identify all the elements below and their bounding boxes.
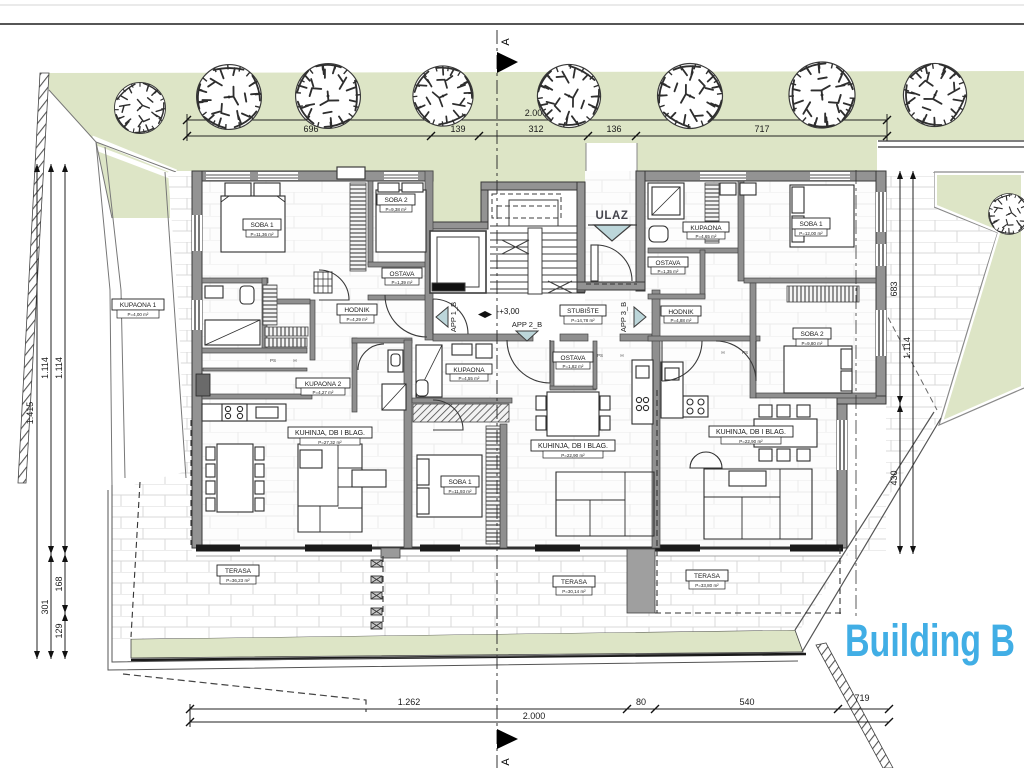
svg-text:OSTAVA: OSTAVA — [390, 271, 416, 278]
svg-text:P=1,35 m²: P=1,35 m² — [658, 269, 679, 274]
svg-text:168: 168 — [54, 576, 64, 591]
svg-text:SOBA 1: SOBA 1 — [799, 221, 823, 228]
svg-text:P=4,65 m²: P=4,65 m² — [696, 234, 717, 239]
svg-text:SOBA 2: SOBA 2 — [800, 331, 824, 338]
svg-text:P=9,38 m²: P=9,38 m² — [386, 207, 407, 212]
svg-text:P=1,39 m²: P=1,39 m² — [392, 280, 413, 285]
svg-text:1.114: 1.114 — [902, 337, 912, 359]
svg-text:P=11,93 m²: P=11,93 m² — [448, 489, 472, 494]
svg-text:PS: PS — [742, 350, 748, 355]
svg-text:H: H — [721, 350, 724, 355]
svg-text:SOBA 1: SOBA 1 — [448, 479, 472, 486]
svg-text:KUPAONA: KUPAONA — [453, 367, 485, 374]
svg-text:KUPAONA: KUPAONA — [690, 225, 722, 232]
svg-text:STUBIŠTE: STUBIŠTE — [567, 306, 599, 315]
svg-text:KUPAONA 1: KUPAONA 1 — [120, 302, 157, 309]
svg-text:1.415: 1.415 — [25, 402, 35, 425]
svg-text:APP 2_B: APP 2_B — [512, 320, 542, 329]
svg-text:P=4,27 m²: P=4,27 m² — [313, 390, 334, 395]
svg-text:430: 430 — [889, 470, 899, 485]
svg-text:SOBA 2: SOBA 2 — [384, 197, 408, 204]
svg-text:ULAZ: ULAZ — [595, 210, 628, 222]
svg-text:P=22,90 m²: P=22,90 m² — [739, 439, 763, 444]
svg-text:H: H — [293, 358, 296, 363]
svg-text:P=12,00 m²: P=12,00 m² — [799, 231, 823, 236]
svg-text:80: 80 — [636, 697, 646, 707]
svg-text:683: 683 — [889, 281, 899, 296]
svg-text:301: 301 — [40, 599, 50, 614]
svg-text:A: A — [500, 758, 512, 766]
svg-text:136: 136 — [606, 124, 621, 134]
svg-text:PS: PS — [270, 358, 276, 363]
svg-text:1.114: 1.114 — [40, 357, 50, 379]
svg-text:TERASA: TERASA — [561, 579, 588, 586]
svg-text:717: 717 — [754, 124, 769, 134]
svg-text:SOBA 1: SOBA 1 — [250, 222, 274, 229]
svg-text:TERASA: TERASA — [225, 568, 252, 575]
svg-text:HODNIK: HODNIK — [344, 307, 370, 314]
svg-text:TERASA: TERASA — [694, 573, 721, 580]
svg-text:KUHINJA, DB I BLAG.: KUHINJA, DB I BLAG. — [716, 429, 786, 436]
svg-text:P=33,80 m²: P=33,80 m² — [695, 583, 719, 588]
svg-text:OSTAVA: OSTAVA — [561, 355, 587, 362]
svg-text:KUPAONA 2: KUPAONA 2 — [305, 381, 342, 388]
svg-text:540: 540 — [739, 697, 754, 707]
svg-text:P=11,36 m²: P=11,36 m² — [250, 232, 274, 237]
svg-text:-+3,00: -+3,00 — [497, 307, 520, 316]
svg-text:P=27,32 m²: P=27,32 m² — [318, 440, 342, 445]
svg-text:1.114: 1.114 — [54, 357, 64, 379]
svg-text:KUHINJA, DB I BLAG.: KUHINJA, DB I BLAG. — [295, 430, 365, 437]
svg-text:PS: PS — [597, 353, 603, 358]
svg-text:KUHINJA, DB I BLAG.: KUHINJA, DB I BLAG. — [538, 443, 608, 450]
svg-text:Building B: Building B — [845, 615, 1015, 666]
svg-text:P=4,29 m²: P=4,29 m² — [347, 317, 368, 322]
svg-text:P=4,88 m²: P=4,88 m² — [671, 318, 692, 323]
svg-text:129: 129 — [54, 623, 64, 638]
svg-text:P=36,23 m²: P=36,23 m² — [226, 578, 250, 583]
svg-text:APP 3_B: APP 3_B — [619, 302, 628, 332]
svg-text:P=1,82 m²: P=1,82 m² — [563, 364, 584, 369]
svg-text:312: 312 — [528, 124, 543, 134]
svg-text:APP 1_B: APP 1_B — [449, 302, 458, 332]
svg-text:P=22,90 m²: P=22,90 m² — [561, 453, 585, 458]
svg-text:719: 719 — [854, 693, 869, 703]
svg-text:139: 139 — [450, 124, 465, 134]
svg-text:HODNIK: HODNIK — [668, 309, 694, 316]
svg-text:OSTAVA: OSTAVA — [656, 260, 682, 267]
svg-text:P=4,55 m²: P=4,55 m² — [459, 376, 480, 381]
svg-text:H: H — [620, 353, 623, 358]
svg-text:A: A — [500, 38, 512, 46]
svg-text:P=9,80 m²: P=9,80 m² — [802, 341, 823, 346]
svg-text:2.000: 2.000 — [523, 711, 546, 721]
svg-text:P=4,00 m²: P=4,00 m² — [128, 312, 149, 317]
svg-text:1.262: 1.262 — [398, 697, 421, 707]
svg-text:P=30,14 m²: P=30,14 m² — [562, 589, 586, 594]
svg-text:P=14,78 m²: P=14,78 m² — [571, 318, 595, 323]
